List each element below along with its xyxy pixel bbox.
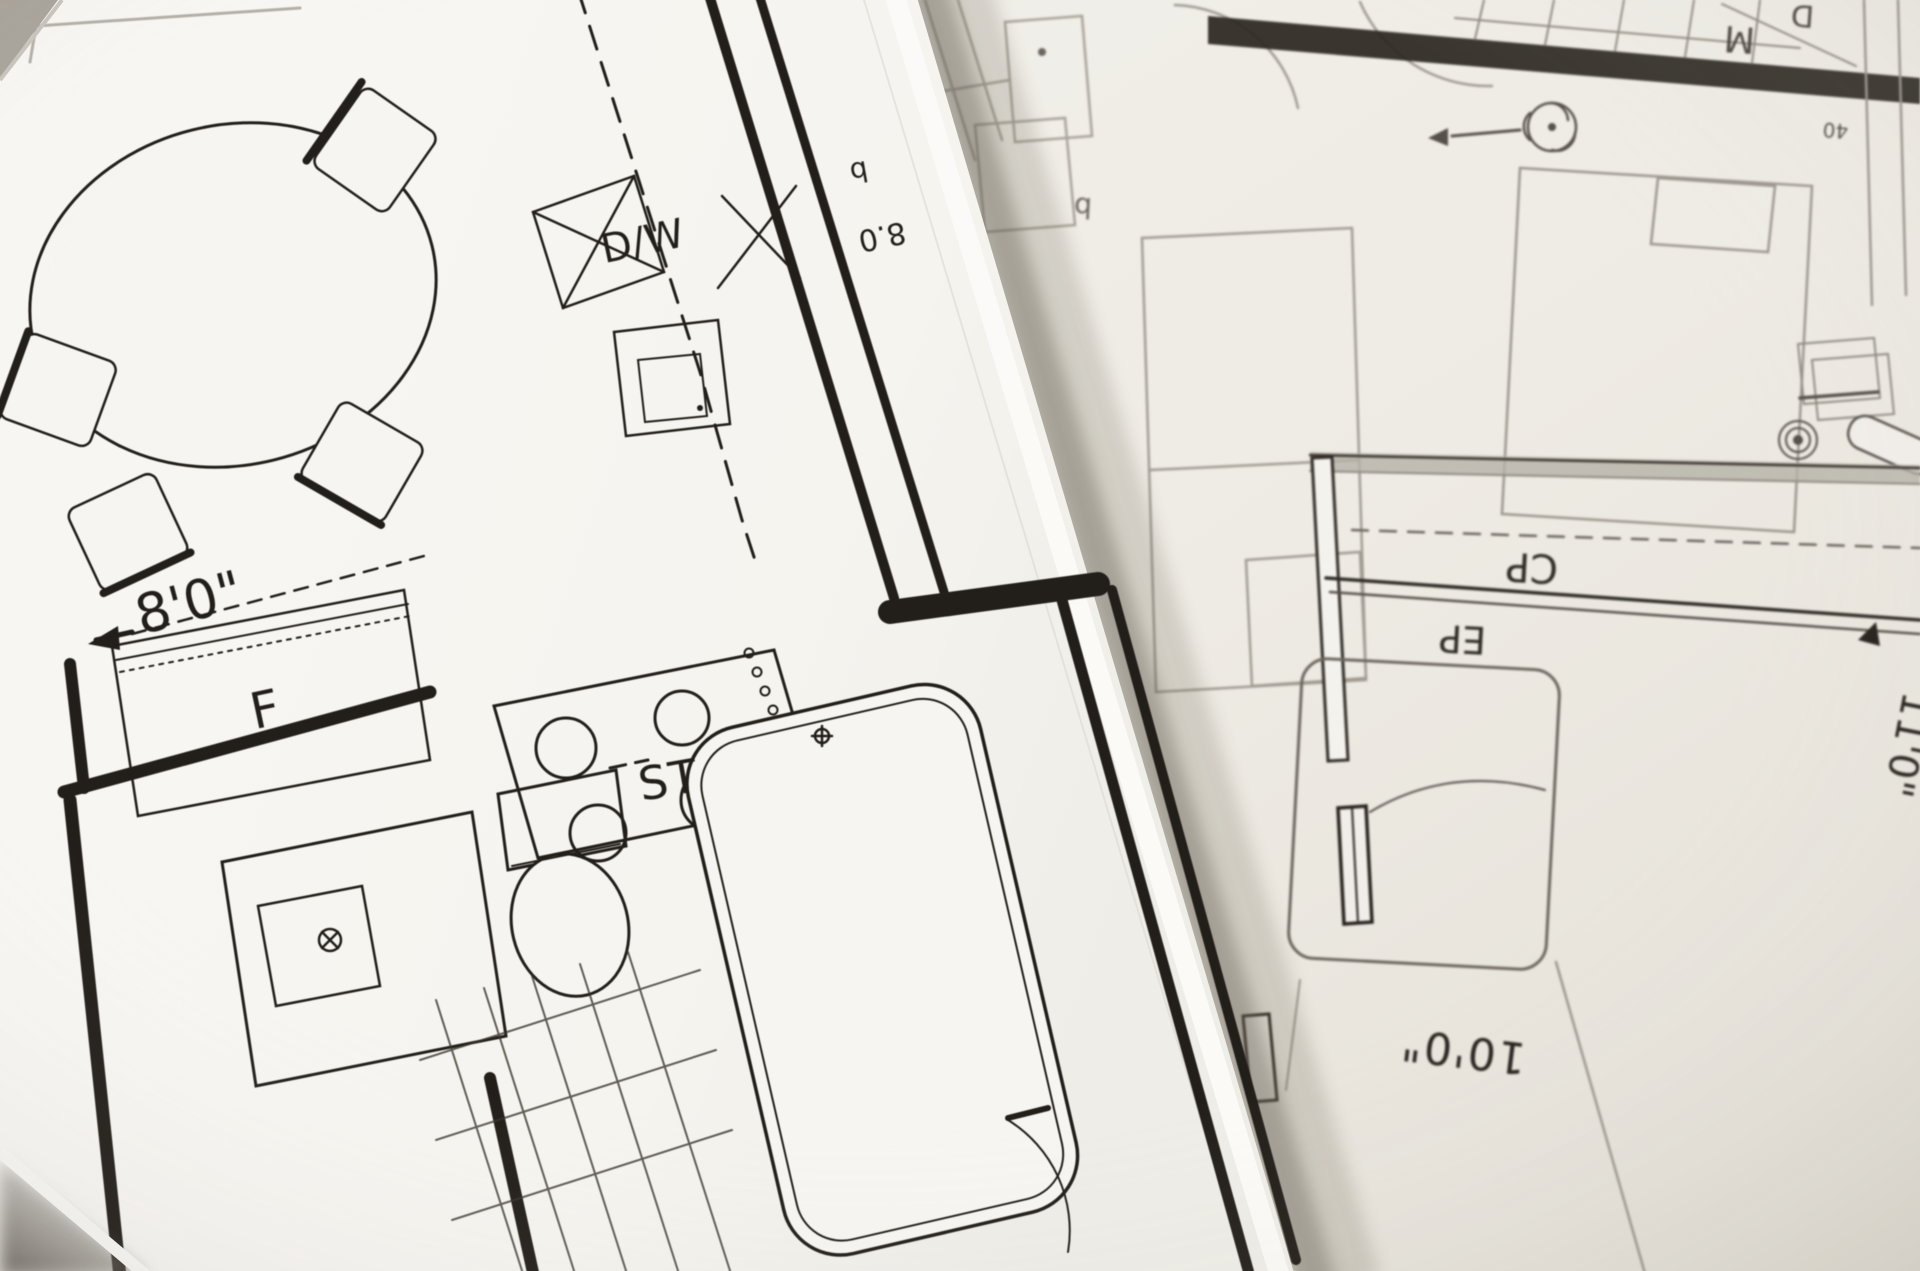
vignette	[0, 0, 1920, 1271]
blueprint-photo: M D 40 b	[0, 0, 1920, 1271]
